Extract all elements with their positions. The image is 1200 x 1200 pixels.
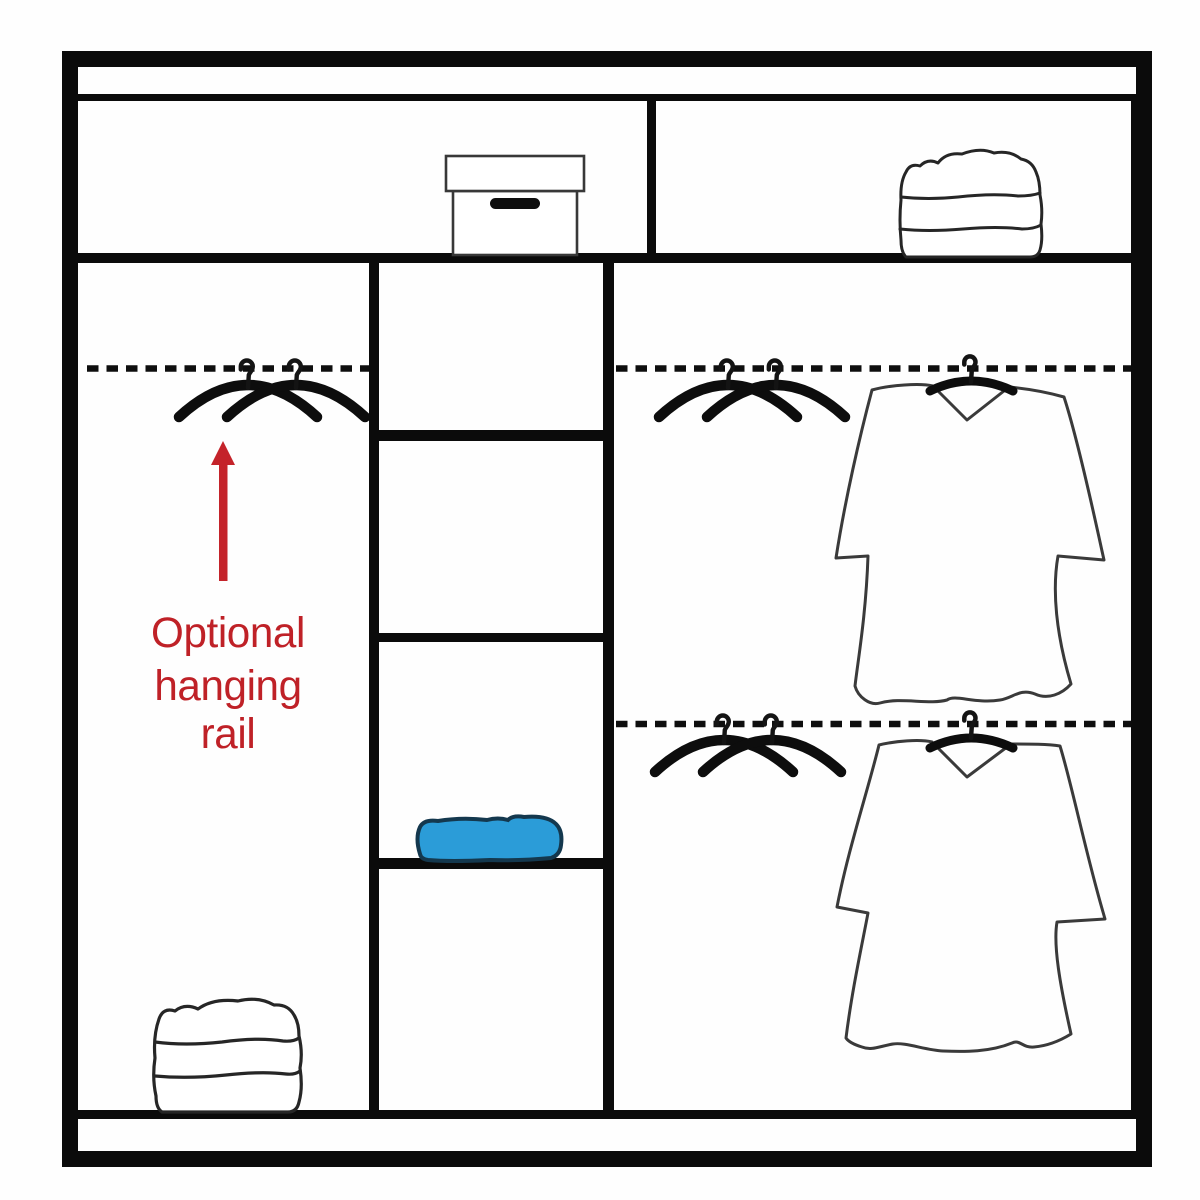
svg-text:Optional: Optional: [151, 609, 305, 656]
svg-text:rail: rail: [201, 710, 256, 757]
svg-text:hanging: hanging: [154, 662, 301, 709]
